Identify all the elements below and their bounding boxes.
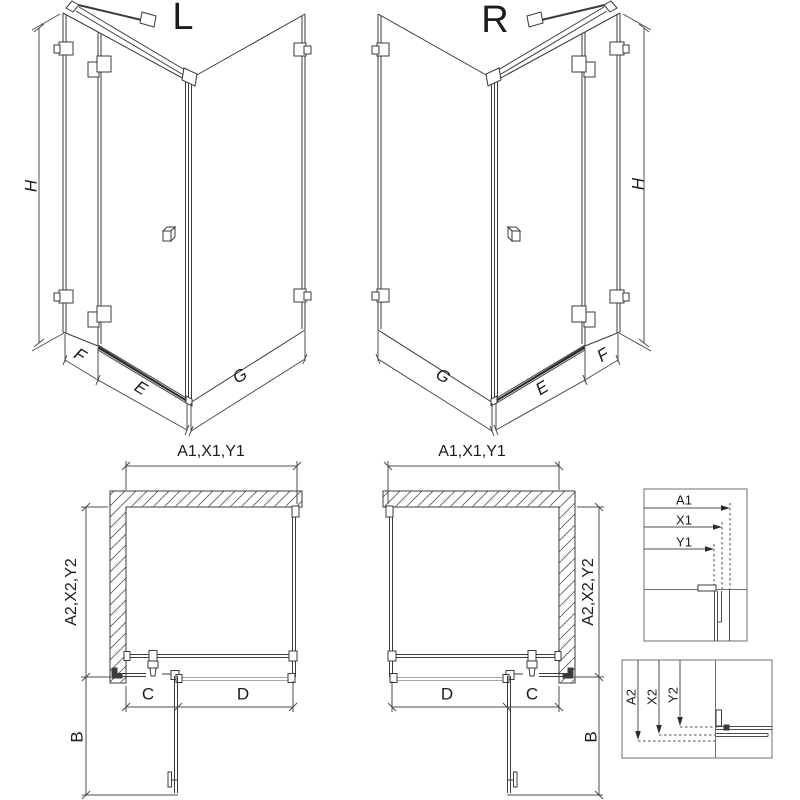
- label-door-swing-right: B: [583, 731, 600, 742]
- label-door-segment-right: D: [441, 686, 453, 703]
- label-left-view: L: [172, 0, 193, 36]
- label-door-segment-left: D: [237, 686, 249, 703]
- label-height-left: H: [23, 180, 40, 192]
- detail-box-depth: [622, 660, 772, 758]
- shower-enclosure-dimension-diagram: L R H H F E G G E F A1,X1,Y1 A1,X1,Y1 A2…: [0, 0, 800, 800]
- label-door-swing-left: B: [69, 731, 86, 742]
- detail-width-row-a1: A1: [676, 494, 692, 507]
- label-height-right: H: [630, 178, 647, 190]
- detail-box-width: [644, 489, 747, 641]
- iso-view-right: [372, 1, 651, 436]
- detail-width-row-y1: Y1: [676, 536, 692, 549]
- label-width-top-left: A1,X1,Y1: [177, 444, 245, 460]
- label-width-top-right: A1,X1,Y1: [438, 444, 506, 460]
- label-depth-side-right: A2,X2,Y2: [581, 558, 597, 626]
- detail-depth-row-a2: A2: [625, 689, 638, 705]
- detail-depth-row-y2: Y2: [667, 687, 680, 703]
- technical-line-art: [0, 0, 800, 800]
- iso-view-left: [32, 1, 311, 436]
- label-right-view: R: [481, 1, 508, 39]
- detail-depth-row-x2: X2: [646, 689, 659, 705]
- label-wall-segment-left: C: [142, 686, 154, 703]
- detail-width-row-x1: X1: [676, 514, 692, 527]
- label-wall-segment-right: C: [526, 686, 538, 703]
- label-depth-side-left: A2,X2,Y2: [64, 558, 80, 626]
